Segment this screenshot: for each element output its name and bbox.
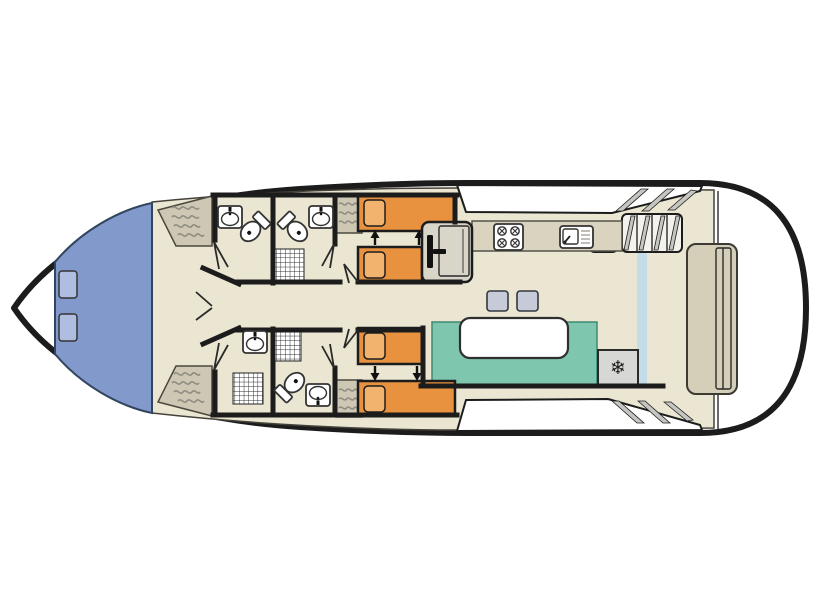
sink-icon bbox=[309, 206, 333, 228]
boat-floorplan: ❄ bbox=[0, 0, 816, 612]
pillow bbox=[364, 386, 385, 412]
salon-stool bbox=[517, 291, 538, 311]
helm-station bbox=[422, 222, 472, 282]
galley-sink-icon bbox=[560, 226, 593, 248]
salon-stool bbox=[487, 291, 508, 311]
shower-tray bbox=[274, 330, 301, 361]
bow-hatch bbox=[59, 271, 77, 298]
salon-table bbox=[460, 318, 568, 358]
bow-hatch bbox=[59, 314, 77, 341]
sink-icon bbox=[306, 384, 330, 406]
stove-icon bbox=[494, 224, 523, 250]
bow-deck-floor bbox=[55, 203, 152, 413]
floorplan-svg: ❄ bbox=[0, 0, 816, 612]
shower-tray bbox=[274, 249, 304, 281]
aft-sun-bench bbox=[687, 244, 737, 394]
pillow bbox=[364, 252, 385, 278]
pillow bbox=[364, 333, 385, 359]
sink-icon bbox=[218, 206, 242, 228]
pillow bbox=[364, 200, 385, 226]
snowflake-icon: ❄ bbox=[610, 357, 626, 379]
sink-icon bbox=[243, 331, 267, 353]
steering-wheel-icon bbox=[427, 235, 433, 268]
galley bbox=[472, 221, 622, 251]
interior-stairs bbox=[622, 214, 682, 252]
bow-deck bbox=[55, 203, 152, 413]
steering-wheel-icon bbox=[433, 249, 446, 254]
shower-tray bbox=[233, 373, 263, 404]
